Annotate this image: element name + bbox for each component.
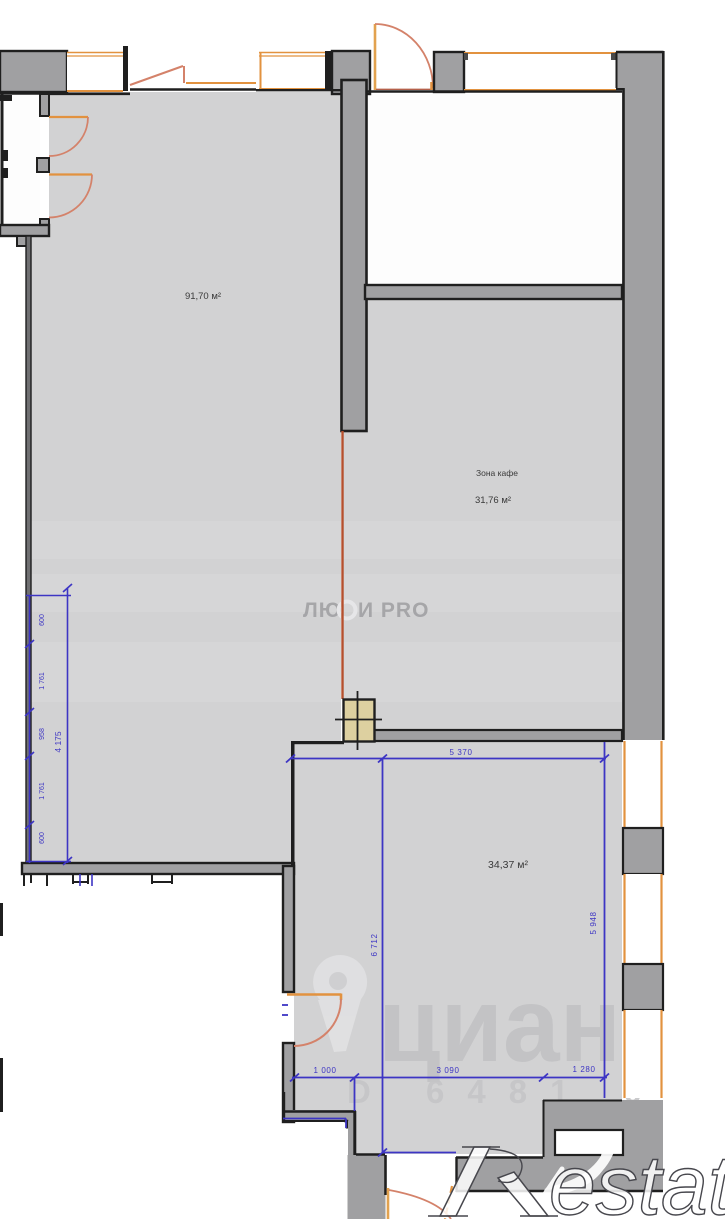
svg-text:1 761: 1 761 — [39, 672, 46, 690]
svg-text:6 712: 6 712 — [370, 933, 379, 956]
svg-text:4 175: 4 175 — [53, 731, 63, 753]
svg-text:estate: estate — [549, 1138, 725, 1219]
svg-text:600: 600 — [39, 614, 46, 626]
svg-text:3 090: 3 090 — [436, 1066, 459, 1075]
svg-text:Зона кафе: Зона кафе — [476, 468, 518, 478]
svg-text:5 948: 5 948 — [589, 911, 598, 934]
svg-text:91,70 м²: 91,70 м² — [185, 291, 221, 302]
svg-text:958: 958 — [39, 728, 46, 740]
svg-text:1 761: 1 761 — [39, 782, 46, 800]
svg-text:И PRO: И PRO — [358, 599, 429, 622]
svg-text:34,37 м²: 34,37 м² — [488, 859, 528, 871]
svg-text:5 370: 5 370 — [449, 748, 472, 757]
svg-text:1 000: 1 000 — [313, 1066, 336, 1075]
svg-text:ЛЮ: ЛЮ — [303, 599, 341, 622]
svg-text:1 280: 1 280 — [572, 1065, 595, 1074]
svg-text:31,76 м²: 31,76 м² — [475, 495, 511, 506]
svg-text:600: 600 — [39, 832, 46, 844]
